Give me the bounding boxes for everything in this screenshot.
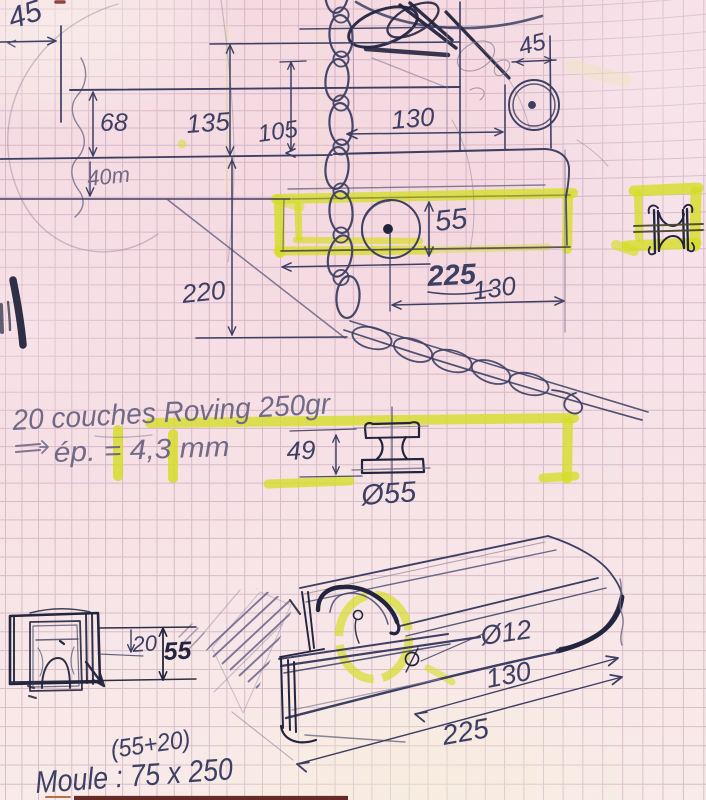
svg-text:20: 20 — [131, 630, 159, 657]
svg-text:130: 130 — [471, 270, 519, 306]
svg-text:49: 49 — [286, 435, 316, 466]
svg-text:105: 105 — [256, 116, 300, 148]
svg-text:55: 55 — [433, 203, 469, 238]
svg-text:135: 135 — [185, 106, 231, 139]
svg-text:Ø55: Ø55 — [359, 476, 418, 512]
svg-text:55: 55 — [163, 637, 193, 666]
svg-text:130: 130 — [390, 101, 436, 135]
svg-text:220: 220 — [179, 275, 227, 310]
svg-text:68: 68 — [100, 109, 128, 137]
svg-text:40m: 40m — [86, 162, 131, 191]
